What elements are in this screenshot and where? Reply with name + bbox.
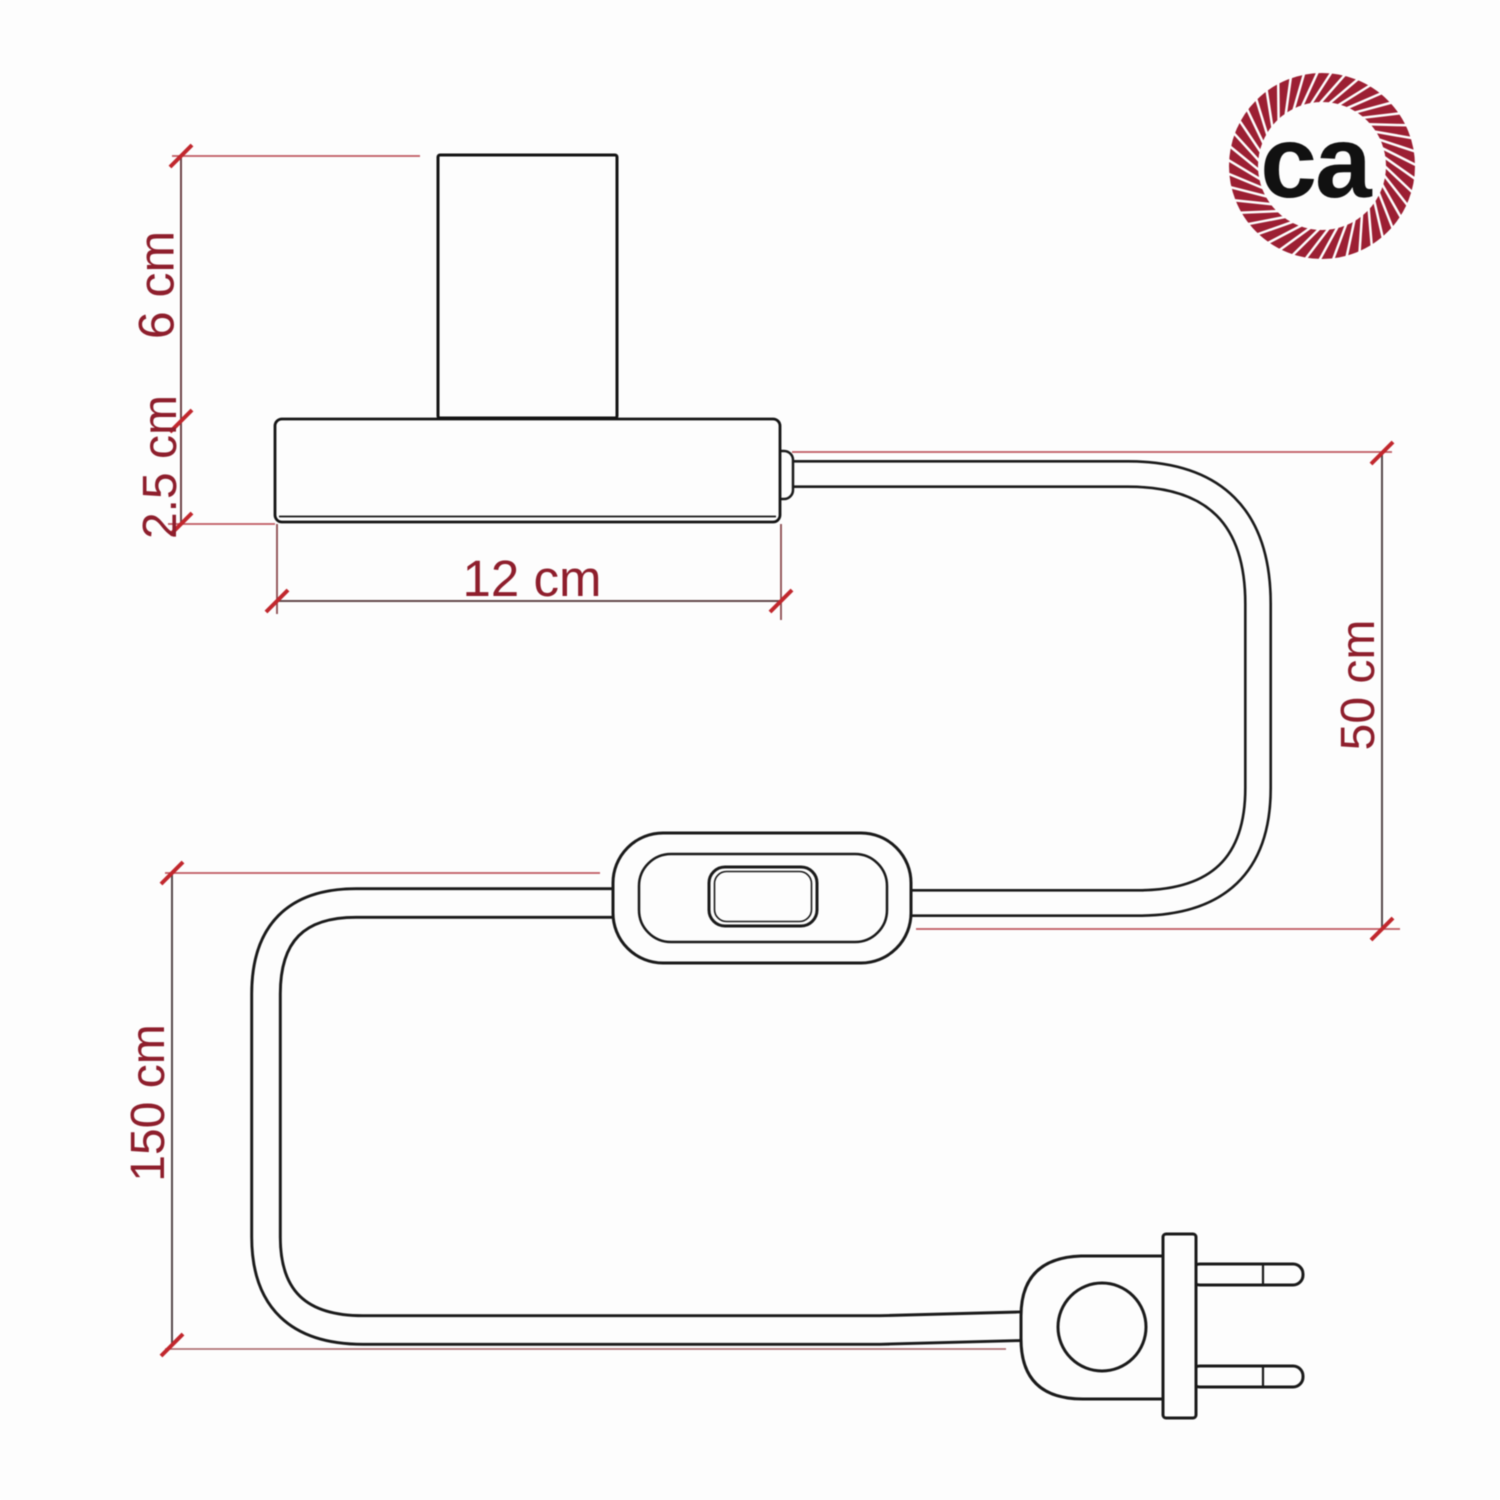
svg-text:12 cm: 12 cm: [463, 550, 602, 607]
svg-text:ca: ca: [1260, 105, 1373, 219]
svg-text:150 cm: 150 cm: [122, 1024, 175, 1181]
svg-text:50 cm: 50 cm: [1332, 620, 1385, 751]
svg-text:6 cm: 6 cm: [129, 231, 185, 339]
svg-text:2.5 cm: 2.5 cm: [134, 395, 187, 539]
